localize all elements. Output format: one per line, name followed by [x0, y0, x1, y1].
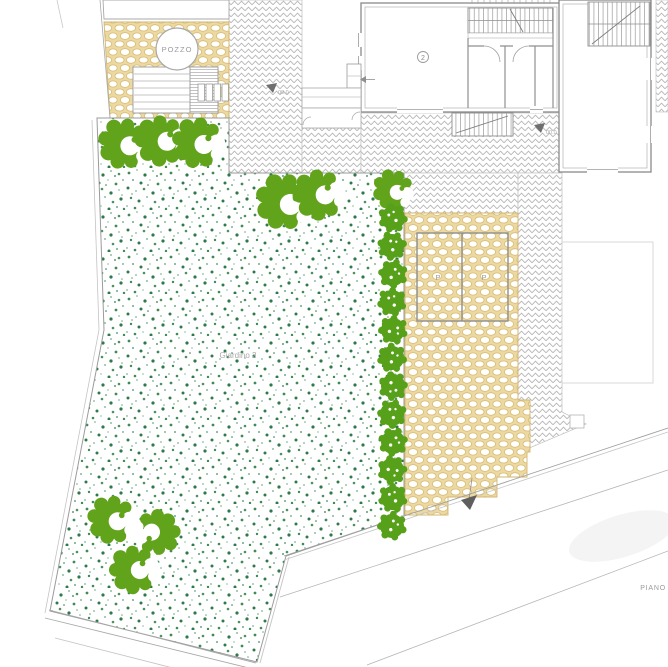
porch	[302, 88, 361, 128]
elevation-marker-right-label: 00.0	[546, 130, 557, 136]
stair-main	[468, 8, 553, 38]
room-number-label: 2	[421, 55, 425, 62]
parking-stall-left-label: P	[435, 273, 440, 282]
deck	[133, 67, 218, 113]
main-building: 2	[347, 0, 561, 113]
terrace-strip	[103, 0, 229, 19]
cobblestone-parking-area	[405, 213, 530, 515]
right-building	[559, 0, 652, 173]
elevation-marker-left-label: 00.0	[278, 90, 289, 96]
stair-courtyard	[452, 113, 513, 136]
site-plan-page: POZZO	[0, 0, 668, 667]
site-plan-drawing: POZZO	[0, 0, 668, 667]
street-label: PIANO	[640, 585, 666, 592]
paving-corner-block	[570, 415, 584, 428]
stair-right-building	[588, 2, 650, 46]
garden-label: Giardino 2	[220, 351, 257, 360]
herringbone-strip-east	[656, 0, 668, 112]
parking-stall-right-label: P	[481, 273, 486, 282]
well-label: POZZO	[162, 45, 193, 54]
